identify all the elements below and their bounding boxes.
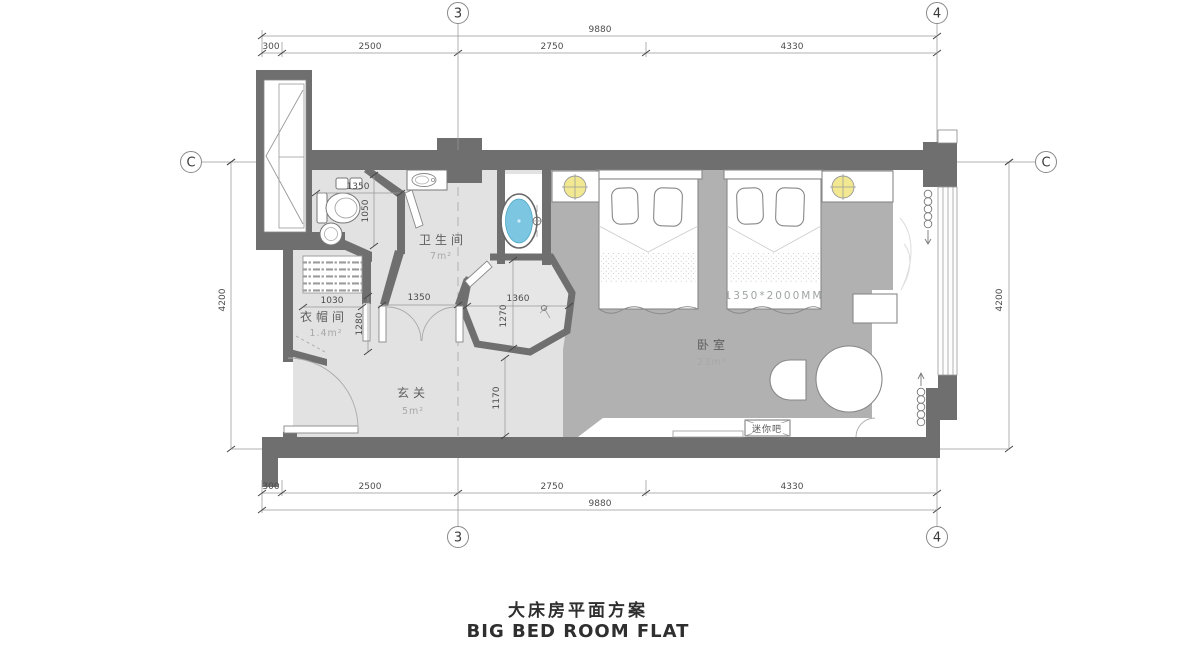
dims-bottom: 300 2500 2750 4330 9880 [258,480,941,513]
wall-right-bottom-a [926,388,940,437]
room-entry-name: 玄关 [397,385,429,400]
dim-wc-width: 1350 [347,182,370,192]
wall-wc-right [397,192,405,254]
shaft-door-leaf [279,84,304,228]
dim-wc-depth: 1050 [361,199,371,222]
entry-door-leaf [284,426,358,433]
bed-1 [596,170,702,314]
window-glazing [938,187,957,375]
dim-overall-width-top: 9880 [589,25,612,35]
dim-seg-bed-top: 4330 [781,42,804,52]
dim-left-offset-bottom: 300 [262,482,279,492]
dim-left-offset-top: 300 [262,42,279,52]
dims-left: 4200 [218,159,262,452]
wall-bottom [262,437,940,458]
floor-plan-canvas: 1350*2000MM 迷你吧 1350 1050 1030 1280 [0,0,1200,650]
pillow-icon [775,188,804,227]
dims-top: 9880 300 2500 2750 4330 [258,25,941,57]
room-cloak-name: 衣帽间 [300,309,348,324]
room-bedroom-area: 23m² [697,357,726,368]
dim-seg-mid-top: 2750 [541,42,564,52]
axis-3-top: 3 [454,7,462,22]
dim-shower-depth: 1270 [499,304,509,327]
cloakroom [303,256,362,293]
dim-cloak-depth: 1280 [355,312,365,335]
headboard [596,170,702,179]
chair [770,360,806,400]
dim-seg-entry-top: 2500 [359,42,382,52]
dim-overall-depth-right: 4200 [995,288,1005,311]
room-cloak-area: 1.4m² [309,328,342,339]
bed-size-label: 1350*2000MM [725,290,824,302]
dim-seg-entry-bottom: 2500 [359,482,382,492]
floor-plan-sheet: 1350*2000MM 迷你吧 1350 1050 1030 1280 [0,0,1200,650]
window-box-top-right [938,130,957,143]
toilet-bowl-icon [326,193,360,223]
wall-tub-right [542,168,551,265]
dim-seg-bed-bottom: 4330 [781,482,804,492]
minibar: 迷你吧 [745,420,790,436]
wall-top [310,150,940,170]
tv-console [673,431,743,437]
dim-seg-mid-bottom: 2750 [541,482,564,492]
dim-shower-width: 1360 [507,294,530,304]
room-entry-area: 5m² [402,406,424,417]
room-bedroom-name: 卧室 [697,337,729,352]
drawing-title-cn: 大床房平面方案 [0,601,1156,621]
axis-c-right: C [1041,156,1050,171]
bathtub-drain [517,219,520,222]
dim-entry-depth: 1170 [492,386,502,409]
room-bathroom-name: 卫生间 [419,233,467,247]
double-door-leaf-left [379,306,386,342]
pedestal-sink-icon [320,223,342,245]
blanket-texture [729,252,819,282]
axis-c-left: C [186,156,195,171]
dim-overall-width-bottom: 9880 [589,499,612,509]
wardrobe-hatch [303,256,362,293]
axis-3-bottom: 3 [454,531,462,546]
dim-overall-depth-left: 4200 [218,288,228,311]
pillow-icon [736,188,763,225]
minibar-label: 迷你吧 [752,423,782,435]
wall-right-bottom-b [938,375,957,420]
room-bathroom-area: 7m² [430,251,452,262]
axis-4-top: 4 [933,7,941,22]
round-table [816,346,882,412]
headboard [724,170,824,179]
drawing-title-en: BIG BED ROOM FLAT [0,621,1156,642]
wall-left [283,250,293,362]
double-door-leaf-right [456,306,463,342]
pillow-icon [653,188,682,227]
blanket-texture [601,252,696,282]
desk [853,294,897,323]
title-block: 大床房平面方案 BIG BED ROOM FLAT [0,601,1156,642]
pillow-icon [611,188,638,225]
bed-2: 1350*2000MM [724,170,824,314]
dim-cloak-width: 1030 [321,296,344,306]
wall-column-right-top [923,142,957,187]
wall-column-bottom-left [262,437,278,487]
axis-4-bottom: 4 [933,531,941,546]
dim-double-door: 1350 [408,293,431,303]
